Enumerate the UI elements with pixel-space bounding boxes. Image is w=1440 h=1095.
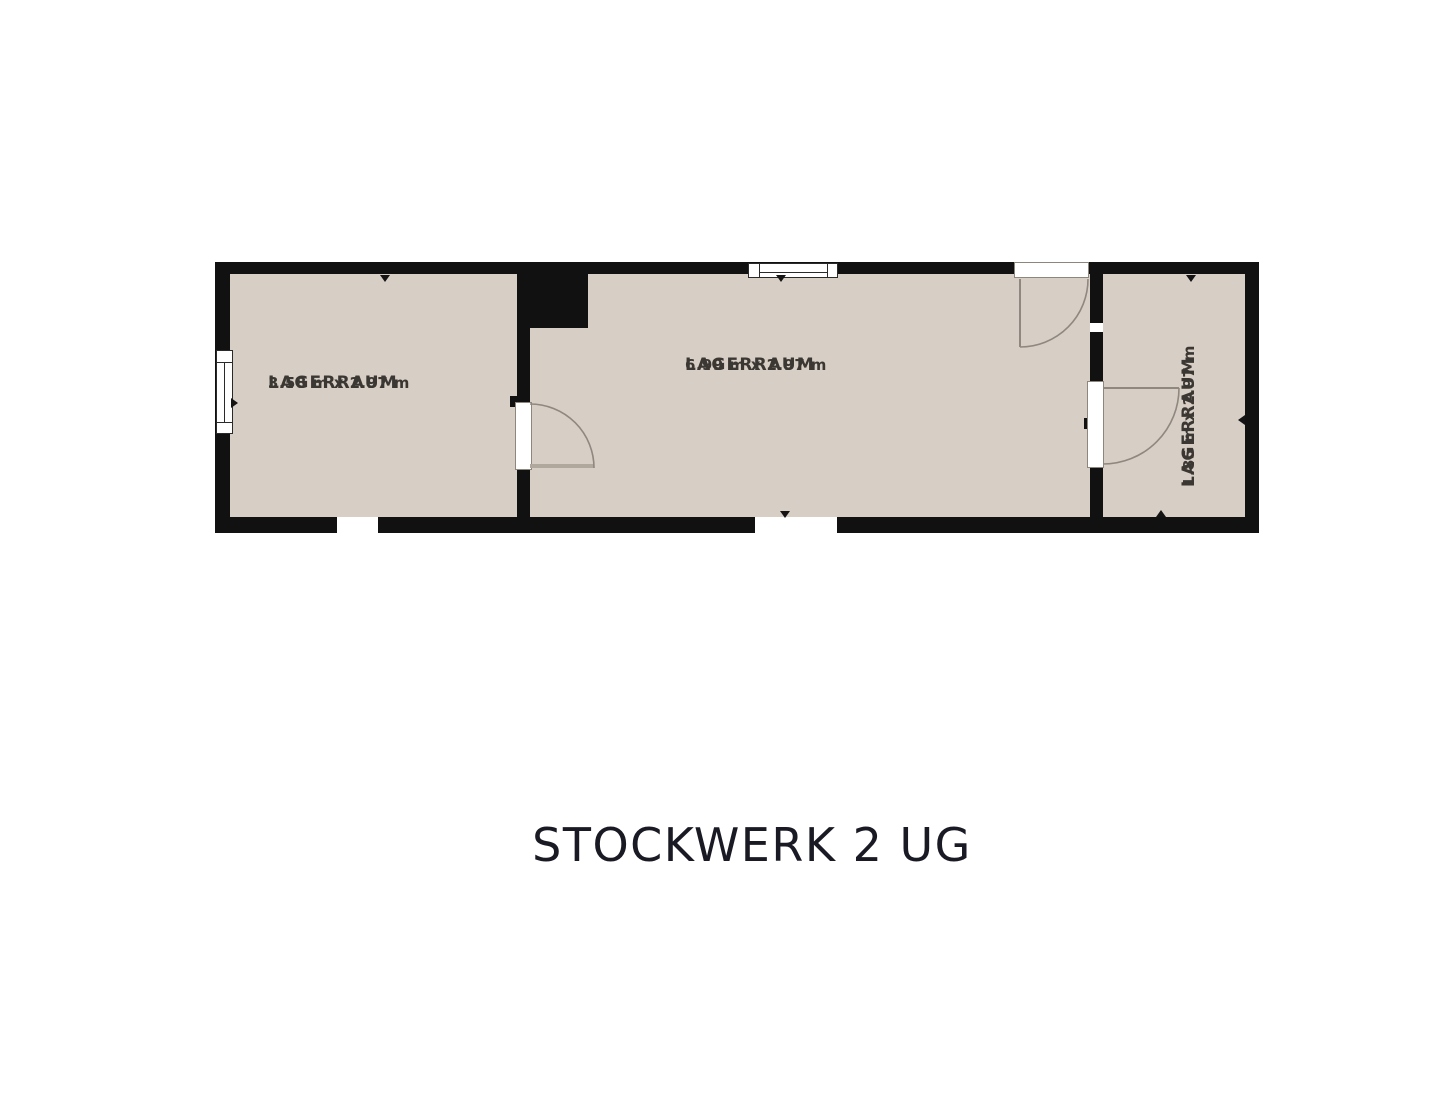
opening-bottom-room1 <box>337 517 378 533</box>
wall-top <box>215 262 1259 274</box>
window-top-room2 <box>748 263 838 278</box>
floor-title: STOCKWERK 2 UG <box>64 818 1440 872</box>
opening-bottom-room2 <box>755 517 837 533</box>
room1-dimensions: 3.58 m x 2.97 m <box>268 372 410 394</box>
window-mullion <box>224 362 225 423</box>
wall-notch-divider-right <box>1090 323 1103 332</box>
door-leaf-room1-room2 <box>515 402 532 470</box>
floorplan-canvas: LAGERRAUM 3.58 m x 2.97 m LAGERRAUM 6.99… <box>215 262 1259 533</box>
wall-right <box>1245 262 1259 533</box>
door-opening-top-room2 <box>1014 262 1089 278</box>
window-left-room1 <box>216 350 233 434</box>
window-mullion <box>827 264 828 277</box>
room3-label: LAGERRAUM 1.85 m x 2.97 m <box>1178 317 1222 487</box>
wall-column-block <box>517 262 588 328</box>
room2-dimensions: 6.99 m x 2.97 m <box>685 354 827 376</box>
window-mullion <box>759 272 827 273</box>
door-leaf-room2-room3 <box>1087 381 1104 468</box>
window-mullion <box>759 264 760 277</box>
room3-dimensions: 1.85 m x 2.97 m <box>1178 345 1200 487</box>
